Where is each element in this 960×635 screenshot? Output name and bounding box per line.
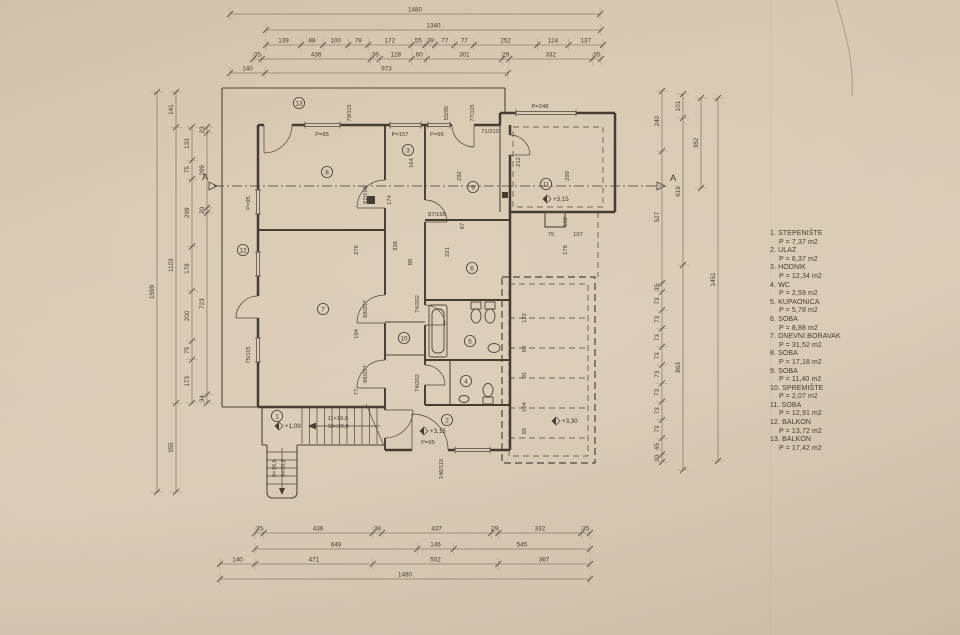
dim-value: 73 (654, 370, 661, 378)
dim-value: 332 (545, 52, 556, 59)
dim-value: 299 (199, 165, 206, 176)
legend-room-name: 10. SPREMIŠTE (770, 385, 841, 394)
dim-value: 23 (199, 126, 206, 134)
dim-label: P=248 (532, 104, 549, 110)
legend-room-name: 4. WC (770, 282, 841, 291)
generated-annotations: 1480134013988100791725539777725212413735… (149, 7, 724, 586)
dim-label: 8×30,8 (281, 459, 287, 477)
bidet-bowl (485, 309, 495, 323)
legend-room-name: 2. ULAZ (770, 247, 841, 256)
wc-toilet-bowl (483, 384, 493, 397)
stair-down-arrow (279, 488, 285, 495)
dim-value: 124 (548, 38, 559, 45)
dim-value: 73 (654, 297, 661, 305)
dim-label: 88/207 (363, 365, 369, 383)
dim-label: 87 (460, 223, 466, 229)
dim-label: 88 (408, 259, 414, 265)
level-value: +3,15 (553, 196, 569, 203)
dim-value: 178 (184, 263, 191, 274)
dim-value: 30 (654, 454, 661, 462)
dim-value: 35 (254, 52, 262, 59)
dim-value: 1599 (149, 285, 156, 300)
dim-value: 619 (675, 186, 682, 197)
dim-value: 77 (441, 38, 449, 45)
level-value: +3,30 (562, 418, 578, 425)
dim-value: 60 (416, 52, 424, 59)
legend-room-name: 7. DNEVNI BORAVAK (770, 333, 841, 342)
exterior-walls (258, 113, 615, 450)
dim-value: 139 (278, 38, 289, 45)
dim-value: 35 (256, 526, 264, 533)
dim-label: 88/207 (363, 300, 369, 318)
dim-value: 172 (385, 38, 396, 45)
dim-value: 73 (654, 407, 661, 415)
balcony-12-dashed (502, 212, 598, 463)
legend-room-name: 5. KUPAONICA (770, 299, 841, 308)
dim-value: 649 (331, 542, 342, 549)
toilet-tank (471, 302, 481, 309)
dim-label: 8×16,6 (272, 459, 278, 477)
dim-value: 39 (427, 38, 435, 45)
dim-label: 91 (522, 372, 528, 378)
wc-toilet-tank (483, 397, 493, 404)
legend-room-name: 1. STEPENIŠTE (770, 230, 841, 239)
dim-value: 79 (355, 38, 363, 45)
dim-value: 88 (309, 38, 317, 45)
bidet-tank (485, 302, 495, 309)
dim-value: 35 (654, 284, 661, 292)
dim-value: 36 (372, 52, 380, 59)
dim-label: 74/202 (415, 295, 421, 313)
legend-room-name: 3. HODNIK (770, 264, 841, 273)
dim-value: 65 (654, 442, 661, 450)
level-value: +3,15 (430, 428, 446, 435)
dim-label: 150 (563, 217, 569, 227)
legend-room-area: P = 17,18 m2 (779, 359, 841, 368)
staircase (262, 404, 385, 498)
dim-value: 1103 (168, 258, 175, 272)
toilet-bowl (471, 309, 481, 323)
dim-label: 77 (354, 389, 360, 395)
dim-value: 38 (374, 526, 382, 533)
dim-label: 55/95 (444, 106, 450, 121)
blueprint-paper: A A 148013401398810079172553977772521241… (0, 0, 960, 635)
dim-value: 29 (502, 52, 510, 59)
legend-room-area: P = 12,34 m2 (779, 273, 841, 282)
room-number: 10 (400, 335, 408, 342)
dim-label: P=95 (315, 132, 329, 138)
dim-value: 73 (654, 315, 661, 323)
sink (488, 344, 500, 353)
dim-value: 29 (491, 526, 499, 533)
room-number: 11 (543, 181, 550, 188)
dim-label: 107 (573, 232, 583, 238)
dim-label: 104 (522, 401, 528, 411)
dim-value: 133 (184, 138, 191, 149)
legend-room-name: 13. BALKON (770, 436, 841, 445)
dim-label: 174 (387, 194, 393, 204)
legend-room-area: P = 31,52 m2 (779, 342, 841, 351)
section-marker-a-right: A (670, 173, 677, 184)
dim-value: 73 (654, 352, 661, 360)
dim-value: 34 (199, 395, 206, 403)
legend-room-name: 9. SOBA (770, 368, 841, 377)
dim-value: 1340 (426, 23, 441, 30)
room-number: 12 (239, 247, 247, 254)
dim-value: 141 (168, 104, 175, 115)
legend-room-area: P = 7,37 m2 (779, 239, 841, 248)
dim-value: 332 (535, 526, 546, 533)
room-number: 2 (445, 417, 449, 424)
dim-value: 436 (311, 52, 322, 59)
level-marker-fill (275, 422, 279, 430)
dim-label: 146/115 (439, 459, 445, 480)
legend-room-area: P = 5,78 m2 (779, 307, 841, 316)
dim-label: 212 (516, 157, 522, 167)
room-number: 8 (325, 169, 329, 176)
room-legend: 1. STEPENIŠTEP = 7,37 m22. ULAZP = 6,37 … (770, 230, 841, 453)
dim-value: 75 (184, 166, 191, 174)
dim-label: P=95 (246, 196, 252, 210)
dim-value: 252 (500, 38, 511, 45)
dim-value: 527 (654, 211, 661, 222)
dim-label: 11×16,6 (328, 416, 349, 422)
dim-label: 75/115 (246, 346, 252, 363)
dim-value: 73 (654, 334, 661, 342)
interior-walls (258, 125, 510, 450)
section-line: A A (202, 172, 677, 190)
chimney-box (545, 212, 565, 227)
dim-value: 545 (517, 542, 528, 549)
dim-label: 77/115 (470, 104, 476, 121)
level-marker-fill (543, 195, 547, 203)
dim-label: 338 (393, 241, 399, 251)
dim-value: 35 (593, 52, 601, 59)
dim-value: 55 (415, 38, 423, 45)
dim-value: 77 (461, 38, 469, 45)
dim-value: 140 (232, 557, 243, 564)
legend-room-area: P = 11,40 m2 (779, 376, 841, 385)
dim-label: 178 (563, 245, 569, 255)
room-number: 4 (464, 378, 468, 385)
dim-value: 35 (582, 526, 590, 533)
dim-value: 137 (581, 38, 592, 45)
dim-value: 269 (184, 207, 191, 218)
dim-label: 164 (409, 157, 415, 167)
dim-label: P=95 (430, 132, 444, 138)
dim-value: 75 (184, 346, 191, 354)
dim-label: P=157 (392, 132, 409, 138)
level-marker-fill (420, 427, 424, 435)
room-number: 5 (468, 338, 472, 345)
legend-room-area: P = 8,88 m2 (779, 325, 841, 334)
dim-value: 502 (430, 557, 441, 564)
dim-label: 82/196 (363, 186, 369, 204)
legend-room-area: P = 13,72 m2 (779, 428, 841, 437)
dim-label: 292 (457, 171, 463, 181)
dim-value: 355 (168, 442, 175, 453)
dim-value: 128 (390, 52, 401, 59)
dim-value: 100 (330, 38, 341, 45)
door-symbols (236, 125, 530, 450)
level-marker-fill (552, 417, 556, 425)
dim-value: 140 (242, 66, 253, 73)
dim-value: 200 (184, 310, 191, 321)
bathroom-fixtures (367, 192, 565, 404)
level-value: +1,09 (285, 423, 301, 430)
dim-label: 299 (565, 171, 571, 181)
dim-value: 367 (539, 557, 550, 564)
dim-value: 1480 (398, 572, 413, 579)
dim-label: 276 (354, 245, 360, 255)
dim-value: 723 (199, 298, 206, 309)
legend-room-area: P = 6,37 m2 (779, 256, 841, 265)
dim-value: 437 (431, 526, 442, 533)
flue-small (502, 192, 508, 198)
dim-value: 471 (309, 557, 320, 564)
dim-value: 1480 (408, 7, 423, 14)
legend-room-name: 12. BALKON (770, 419, 841, 428)
room-number: 7 (321, 306, 325, 313)
dim-value: 301 (459, 52, 470, 59)
room-number: 1 (275, 413, 279, 420)
dim-value: 436 (313, 526, 324, 533)
legend-room-area: P = 2,59 m2 (779, 290, 841, 299)
bathtub-inner (432, 309, 444, 353)
legend-room-area: P = 2,07 m2 (779, 393, 841, 402)
dim-label: 65 (522, 428, 528, 434)
dim-value: 73 (654, 388, 661, 396)
legend-room-area: P = 17,42 m2 (779, 445, 841, 454)
dim-label: 79/115 (347, 104, 353, 121)
wing-dashed-inset (513, 127, 603, 207)
dim-label: 71/210 (481, 129, 499, 135)
window-symbols (255, 110, 576, 454)
dim-label: 122 (522, 313, 528, 323)
dim-label: 75 (548, 232, 554, 238)
dim-value: 863 (675, 362, 682, 373)
dim-label: 88 (522, 346, 528, 352)
paper-edge-curve (836, 0, 852, 96)
dim-value: 173 (184, 376, 191, 387)
dim-label: 87/196 (428, 212, 446, 218)
dim-value: 20 (199, 206, 206, 214)
dim-label: 74/202 (415, 374, 421, 392)
legend-room-name: 6. SOBA (770, 316, 841, 325)
room-number: 9 (471, 184, 475, 191)
dim-value: 146 (430, 542, 441, 549)
dim-value: 240 (654, 115, 661, 126)
dim-value: 362 (693, 137, 700, 148)
legend-room-name: 8. SOBA (770, 350, 841, 359)
dim-value: 101 (675, 100, 682, 111)
dim-value: 973 (381, 66, 392, 73)
dim-value: 1451 (710, 272, 717, 287)
wc-sink (459, 396, 469, 403)
room-number: 6 (470, 265, 474, 272)
room-number: 3 (406, 147, 410, 154)
dim-label: 221 (445, 247, 451, 257)
dim-label: 10×30,8 (327, 424, 348, 430)
legend-room-area: P = 12,91 m2 (779, 410, 841, 419)
dim-label: P=95 (421, 440, 435, 446)
room-number: 13 (295, 100, 303, 107)
legend-room-name: 11. SOBA (770, 402, 841, 411)
dim-label: 194 (354, 328, 360, 338)
dim-value: 73 (654, 425, 661, 433)
